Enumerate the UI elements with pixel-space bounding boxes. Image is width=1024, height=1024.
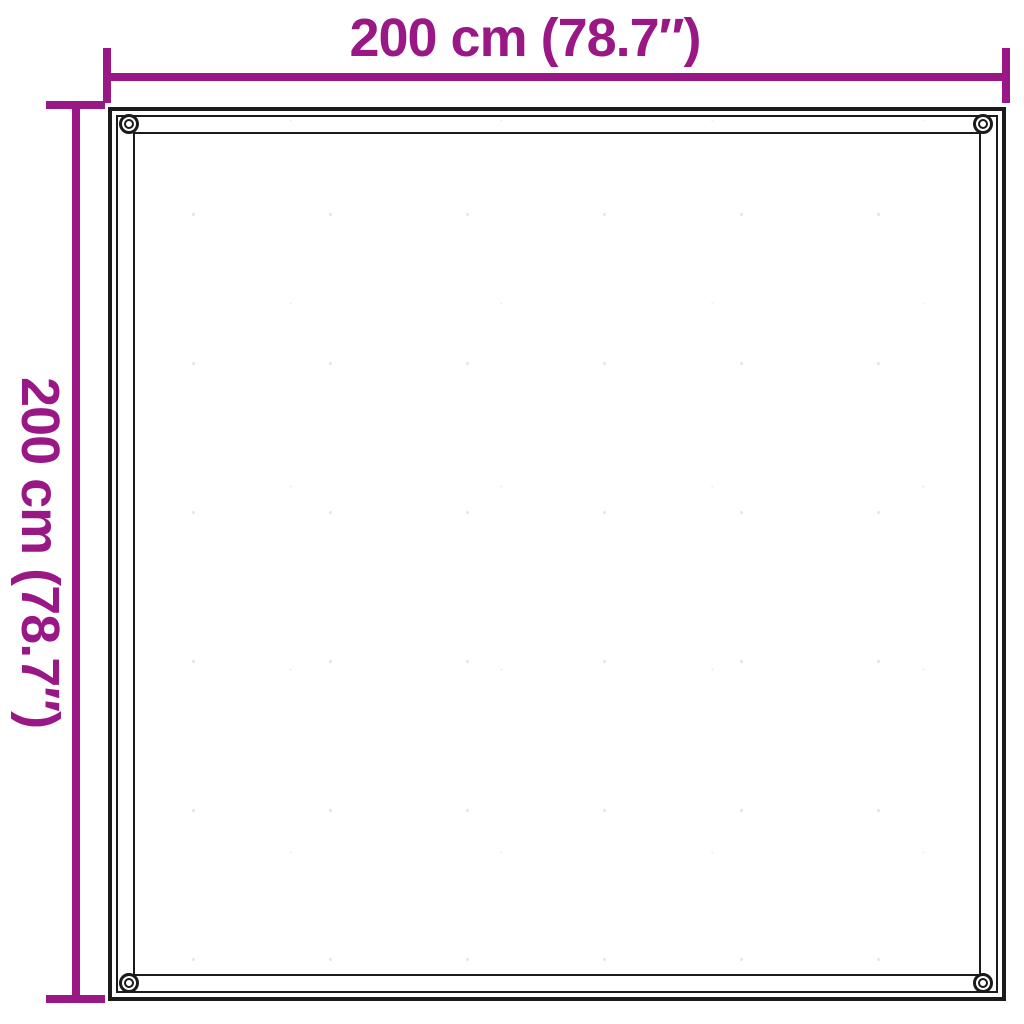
eyelet-bottom-left [119,973,139,993]
sheet-hem-line [133,132,981,976]
diagram-canvas: 200 cm (78.7″) 200 cm (78.7″) [0,0,1024,1024]
eyelet-top-right [973,114,993,134]
height-dimension-cap-bottom [46,995,105,1003]
eyelet-top-left [119,114,139,134]
eyelet-bottom-right [973,973,993,993]
height-dimension-label: 200 cm (78.7″) [13,377,67,707]
tarp-sheet [108,107,1006,1001]
height-dimension-line [72,108,80,996]
width-dimension-label: 200 cm (78.7″) [349,11,700,65]
width-dimension-line [108,73,1006,81]
width-dimension-cap-right [1002,48,1010,103]
